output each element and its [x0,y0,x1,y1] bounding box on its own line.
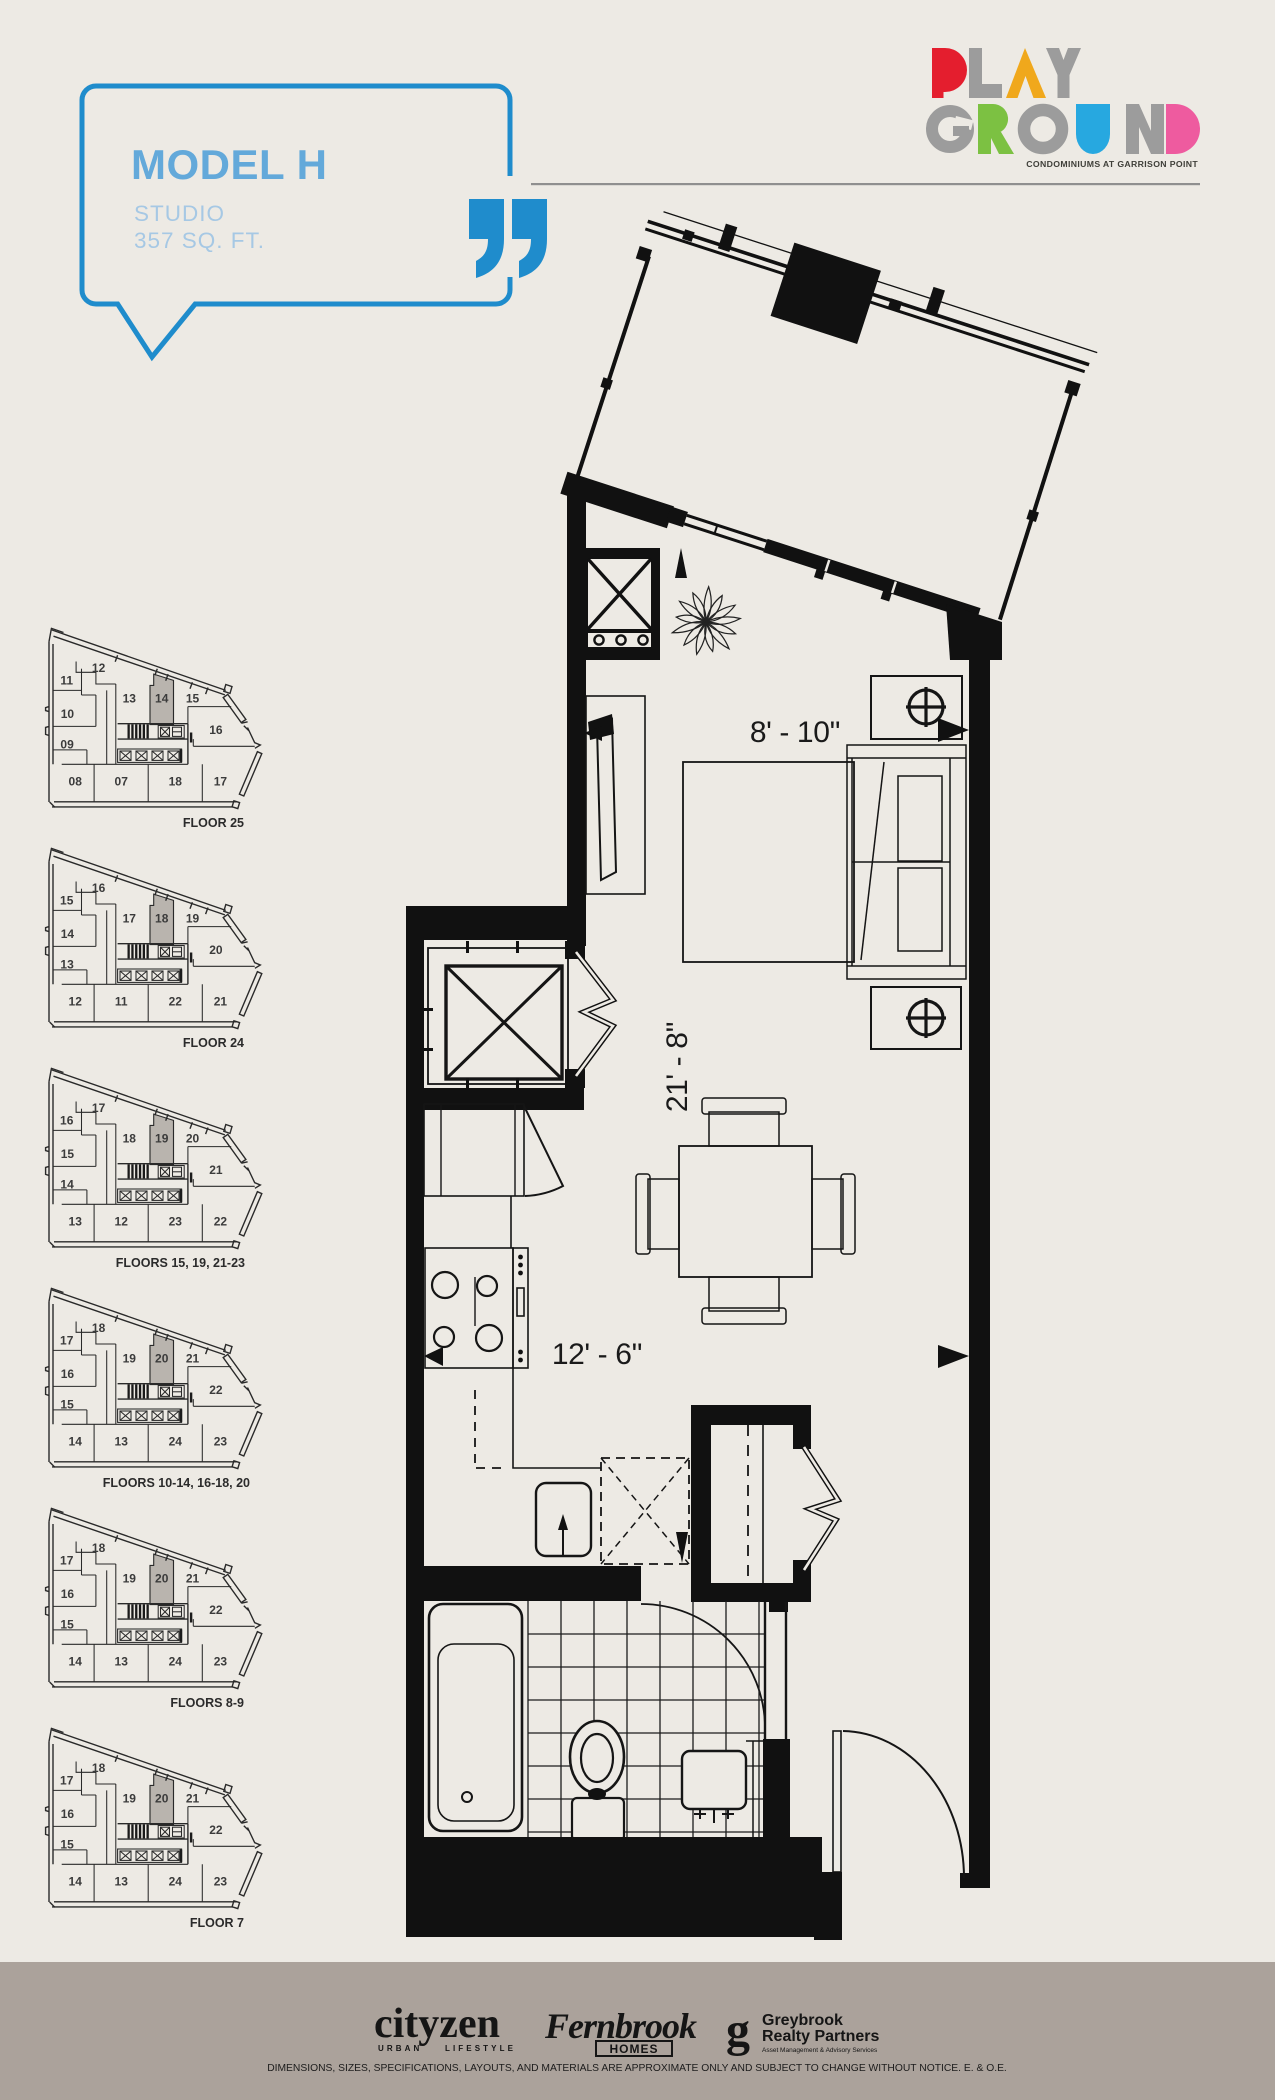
svg-text:FLOORS 10-14, 16-18, 20: FLOORS 10-14, 16-18, 20 [103,1476,250,1490]
svg-text:20: 20 [155,1572,169,1586]
svg-text:17: 17 [60,1334,74,1348]
svg-text:cityzen: cityzen [374,2001,500,2047]
svg-text:19: 19 [123,1572,137,1586]
svg-text:21: 21 [214,995,228,1009]
svg-text:22: 22 [209,1823,223,1837]
svg-text:14: 14 [69,1435,83,1449]
svg-text:18: 18 [169,775,183,789]
svg-text:21: 21 [186,1792,200,1806]
svg-text:19: 19 [123,1792,137,1806]
svg-text:24: 24 [169,1435,183,1449]
svg-text:Realty Partners: Realty Partners [762,2028,879,2045]
svg-text:12: 12 [92,661,106,675]
svg-text:13: 13 [69,1215,83,1229]
svg-text:18: 18 [92,1541,106,1555]
svg-text:24: 24 [169,1655,183,1669]
svg-text:13: 13 [115,1875,129,1889]
svg-text:20: 20 [209,943,223,957]
svg-text:17: 17 [60,1554,74,1568]
svg-text:22: 22 [214,1215,228,1229]
svg-text:15: 15 [60,1398,74,1412]
svg-text:15: 15 [60,1838,74,1852]
svg-text:24: 24 [169,1875,183,1889]
svg-text:23: 23 [214,1875,228,1889]
svg-text:23: 23 [214,1435,228,1449]
svg-text:16: 16 [209,723,223,737]
svg-text:URBAN: URBAN [378,2044,422,2053]
svg-text:19: 19 [155,1132,169,1146]
svg-text:19: 19 [123,1352,137,1366]
svg-text:11: 11 [60,674,73,688]
svg-text:20: 20 [186,1132,200,1146]
svg-text:16: 16 [92,881,106,895]
svg-text:17: 17 [123,912,137,926]
svg-text:14: 14 [69,1655,83,1669]
svg-text:HOMES: HOMES [609,2042,658,2056]
svg-text:14: 14 [60,1178,74,1192]
svg-text:14: 14 [155,692,169,706]
svg-text:23: 23 [169,1215,183,1229]
svg-text:12: 12 [115,1215,129,1229]
svg-text:22: 22 [209,1603,223,1617]
svg-text:20: 20 [155,1792,169,1806]
svg-text:18: 18 [123,1132,137,1146]
svg-text:13: 13 [115,1435,129,1449]
svg-text:21: 21 [186,1352,200,1366]
svg-text:357 SQ. FT.: 357 SQ. FT. [134,228,265,253]
svg-text:12: 12 [69,995,83,1009]
svg-text:14: 14 [69,1875,83,1889]
svg-text:FLOOR 7: FLOOR 7 [190,1916,244,1930]
svg-text:18: 18 [92,1321,106,1335]
svg-text:12' - 6'': 12' - 6'' [552,1338,642,1371]
svg-text:CONDOMINIUMS AT GARRISON POINT: CONDOMINIUMS AT GARRISON POINT [1026,159,1198,169]
svg-text:g: g [726,2004,750,2057]
svg-text:17: 17 [92,1101,106,1115]
svg-text:15: 15 [60,1618,74,1632]
svg-text:8' - 10'': 8' - 10'' [750,716,840,749]
svg-text:17: 17 [214,775,228,789]
svg-text:11: 11 [115,995,128,1009]
svg-text:09: 09 [60,738,74,752]
svg-text:STUDIO: STUDIO [134,201,225,226]
svg-text:21: 21 [209,1163,223,1177]
svg-text:16: 16 [61,1587,75,1601]
svg-text:DIMENSIONS, SIZES, SPECIFICATI: DIMENSIONS, SIZES, SPECIFICATIONS, LAYOU… [267,2063,1007,2074]
svg-text:16: 16 [61,1367,75,1381]
svg-text:13: 13 [115,1655,129,1669]
svg-text:14: 14 [61,927,75,941]
svg-text:FLOOR 25: FLOOR 25 [183,816,244,830]
svg-text:13: 13 [60,958,74,972]
svg-text:LIFESTYLE: LIFESTYLE [445,2044,516,2053]
svg-text:FLOORS 15, 19, 21-23: FLOORS 15, 19, 21-23 [116,1256,245,1270]
svg-text:18: 18 [92,1761,106,1775]
svg-text:Asset Management & Advisory Se: Asset Management & Advisory Services [762,2047,878,2054]
svg-text:23: 23 [214,1655,228,1669]
svg-text:17: 17 [60,1774,74,1788]
svg-text:18: 18 [155,912,169,926]
svg-text:08: 08 [69,775,83,789]
svg-text:16: 16 [60,1114,74,1128]
svg-text:10: 10 [61,707,75,721]
svg-text:19: 19 [186,912,200,926]
svg-text:FLOORS 8-9: FLOORS 8-9 [170,1696,244,1710]
svg-text:MODEL H: MODEL H [131,141,327,188]
svg-text:15: 15 [61,1147,75,1161]
svg-text:Greybrook: Greybrook [762,2012,843,2029]
svg-text:16: 16 [61,1807,75,1821]
svg-text:15: 15 [60,894,74,908]
svg-text:07: 07 [115,775,129,789]
svg-text:22: 22 [209,1383,223,1397]
svg-text:20: 20 [155,1352,169,1366]
svg-text:15: 15 [186,692,200,706]
svg-text:22: 22 [169,995,183,1009]
svg-text:21: 21 [186,1572,200,1586]
svg-text:21' - 8'': 21' - 8'' [661,1022,694,1112]
svg-text:13: 13 [123,692,137,706]
svg-text:FLOOR 24: FLOOR 24 [183,1036,244,1050]
